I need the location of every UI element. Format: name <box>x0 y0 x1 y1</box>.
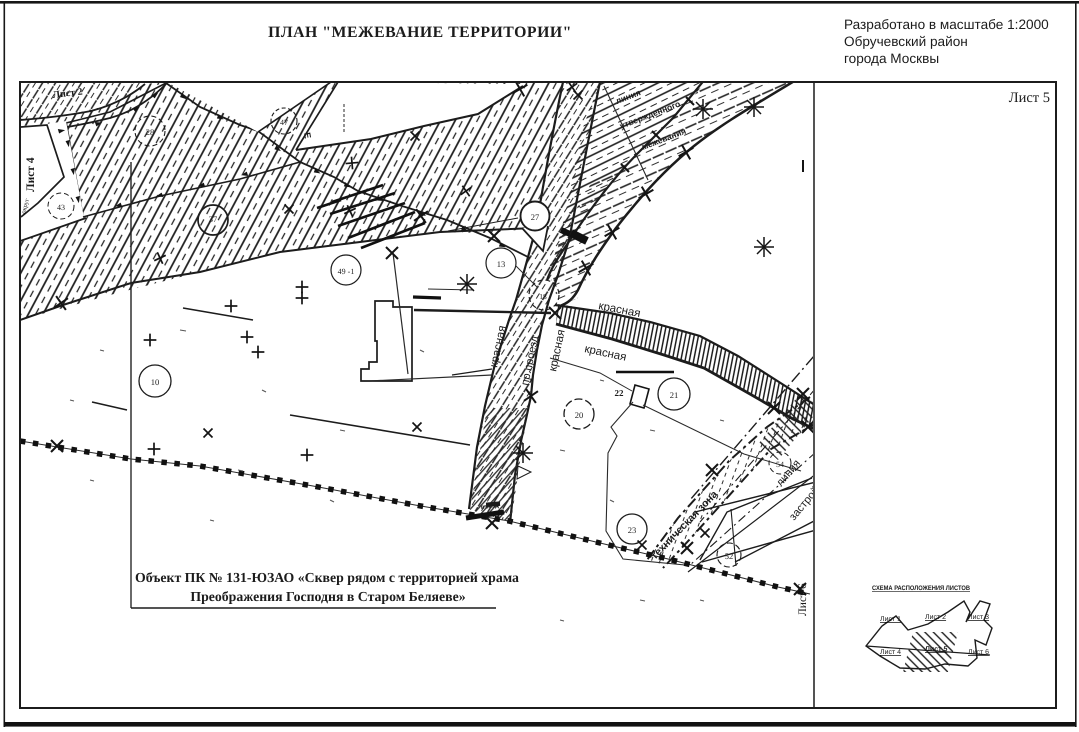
svg-text:Лист 4: Лист 4 <box>880 649 901 656</box>
svg-text:Лист 2: Лист 2 <box>925 614 946 621</box>
svg-text:37: 37 <box>209 214 218 224</box>
svg-text:Преображения Господня в Старом: Преображения Господня в Старом Беляеве» <box>190 589 465 604</box>
svg-text:54: 54 <box>776 460 784 469</box>
svg-text:города Москвы: города Москвы <box>844 51 939 66</box>
svg-text:20: 20 <box>575 410 584 420</box>
svg-text:18: 18 <box>539 292 547 301</box>
svg-text:Лист 5: Лист 5 <box>925 646 947 653</box>
svg-text:13: 13 <box>497 259 506 269</box>
svg-text:10: 10 <box>151 377 160 387</box>
svg-text:23: 23 <box>628 525 637 535</box>
svg-text:Разработано в масштабе 1:2000: Разработано в масштабе 1:2000 <box>844 17 1049 32</box>
svg-text:52: 52 <box>725 551 734 561</box>
svg-text:Лист 6: Лист 6 <box>968 649 989 656</box>
svg-text:21: 21 <box>670 390 679 400</box>
svg-text:28: 28 <box>146 127 155 137</box>
svg-text:Объект ПК № 131-ЮЗАО «Сквер ря: Объект ПК № 131-ЮЗАО «Сквер рядом с терр… <box>135 570 519 585</box>
svg-text:Обручевский район: Обручевский район <box>844 34 968 49</box>
svg-text:СХЕМА РАСПОЛОЖЕНИЯ ЛИСТОВ: СХЕМА РАСПОЛОЖЕНИЯ ЛИСТОВ <box>872 585 970 592</box>
svg-text:22: 22 <box>615 388 625 398</box>
svg-text:Лист 5: Лист 5 <box>1009 90 1050 106</box>
svg-text:Лист 4: Лист 4 <box>25 157 37 192</box>
svg-text:Лист 3: Лист 3 <box>968 614 989 621</box>
svg-text:43: 43 <box>57 203 65 212</box>
svg-text:Лист 1: Лист 1 <box>880 616 901 623</box>
svg-text:27: 27 <box>531 212 540 222</box>
svg-text:49 -1: 49 -1 <box>338 267 355 276</box>
svg-text:ПЛАН "МЕЖЕВАНИЕ ТЕРРИТОРИИ": ПЛАН "МЕЖЕВАНИЕ ТЕРРИТОРИИ" <box>268 24 572 41</box>
svg-text:47: 47 <box>280 118 288 127</box>
